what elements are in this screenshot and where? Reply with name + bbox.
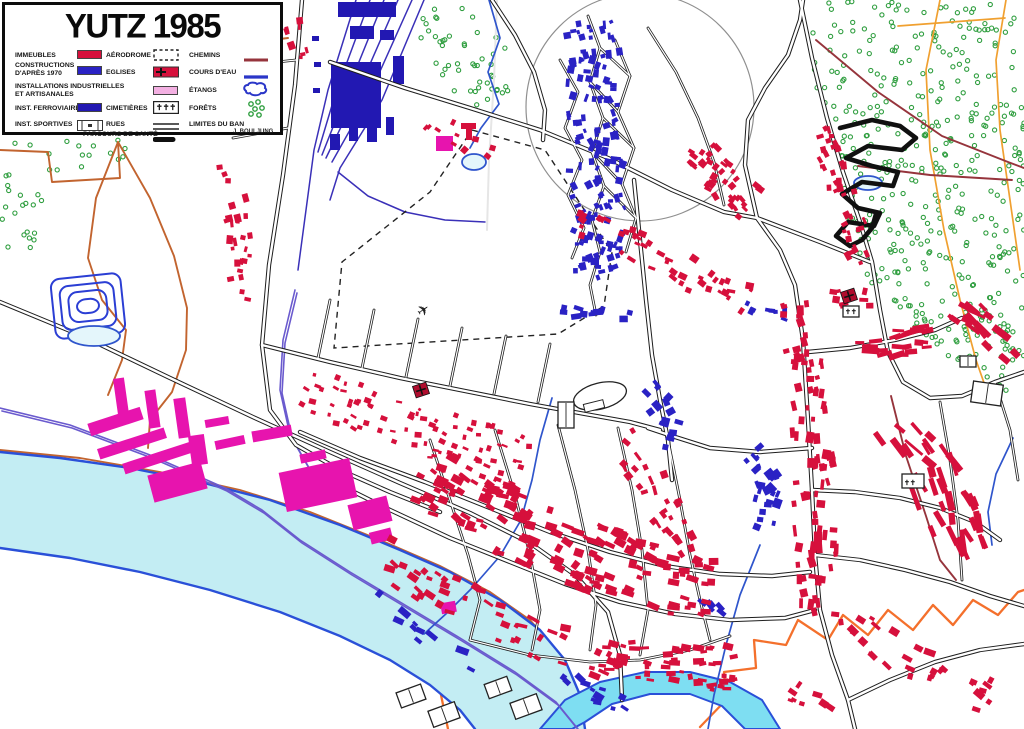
forest-dot [871, 34, 875, 38]
forest-dot [886, 4, 890, 8]
building [570, 227, 578, 234]
legend-label-chemins: CHEMINS [189, 52, 220, 60]
building [546, 506, 554, 514]
building [792, 525, 797, 537]
building [363, 420, 370, 427]
building [453, 412, 459, 418]
forest-dot [485, 97, 489, 101]
building [573, 268, 578, 273]
forest-dot [953, 229, 957, 233]
forest-dot [950, 285, 954, 289]
building [668, 578, 680, 586]
building [606, 241, 614, 248]
forest-dot [961, 91, 965, 95]
legend-swatch-industrielles [153, 86, 178, 95]
building [745, 282, 754, 290]
building [933, 510, 946, 527]
forest-dot [894, 8, 898, 12]
forest-dot [970, 134, 974, 138]
building [609, 19, 614, 24]
forest-dot [13, 211, 17, 215]
forest-dot [896, 3, 900, 7]
building [981, 340, 993, 352]
forest-dot [39, 198, 43, 202]
forest-dot [1005, 343, 1009, 347]
forest-dot [854, 110, 858, 114]
forest-dot [980, 214, 984, 218]
forest-dot [974, 112, 978, 116]
forest-dot [989, 189, 993, 193]
forest-dot [87, 153, 91, 157]
forest-dot [28, 143, 32, 147]
building [231, 246, 235, 250]
building [604, 668, 615, 671]
forest-dot [1013, 153, 1017, 157]
forest-dot [1007, 251, 1011, 255]
forest-dot [875, 104, 879, 108]
stream-line [988, 438, 1013, 545]
forest-dot [823, 86, 827, 90]
building [699, 149, 706, 156]
forest-dot [882, 197, 886, 201]
building [517, 464, 524, 471]
building [661, 665, 671, 670]
forest-dot [901, 191, 905, 195]
forest-dot [884, 100, 888, 104]
building [240, 235, 246, 241]
building [671, 646, 679, 654]
forest-dot [79, 165, 83, 169]
forest-dot [956, 79, 960, 83]
building [391, 438, 398, 444]
forest-dot [994, 28, 998, 32]
forest-dot [829, 7, 833, 11]
forest-dot [910, 241, 914, 245]
forest-dot [1011, 50, 1015, 54]
forest-dot [909, 105, 913, 109]
building [832, 296, 840, 304]
building [724, 277, 731, 284]
forest-dot [965, 67, 969, 71]
forest-dot [851, 29, 855, 33]
building [247, 232, 253, 239]
forest-dot [934, 161, 938, 165]
building [576, 30, 580, 35]
building [803, 332, 808, 338]
building [813, 433, 820, 444]
building [244, 297, 251, 302]
building [514, 438, 520, 443]
forest-dot [867, 52, 871, 56]
rail-installation [367, 120, 377, 142]
building [587, 25, 591, 29]
building [520, 434, 526, 440]
building [350, 414, 357, 419]
forest-dot [1014, 279, 1018, 283]
legend-swatch-chemins-icon [243, 51, 269, 69]
forest-dot [832, 23, 836, 27]
building [358, 381, 365, 388]
building [753, 494, 759, 502]
building [620, 704, 629, 711]
building [806, 367, 811, 373]
building [836, 178, 842, 186]
legend-swatch-constructions [77, 66, 102, 75]
building [797, 305, 804, 315]
building [674, 419, 683, 426]
chemin-path [816, 40, 1024, 168]
building [225, 178, 231, 183]
forest-dot [973, 169, 977, 173]
building [894, 354, 909, 357]
building [592, 96, 597, 102]
building [820, 164, 826, 169]
building [799, 588, 808, 598]
forest-dot [1007, 164, 1011, 168]
building [697, 278, 707, 287]
building [578, 57, 581, 64]
forest-dot [920, 311, 924, 315]
building [634, 452, 642, 462]
forest-dot [432, 7, 436, 11]
building [794, 542, 803, 552]
forest-dot [1001, 365, 1005, 369]
building [642, 570, 651, 576]
building [656, 250, 665, 258]
forest-dot [967, 26, 971, 30]
forest-dot [992, 233, 996, 237]
building [642, 464, 649, 471]
building [790, 400, 797, 411]
forest-dot [1009, 22, 1013, 26]
forest-dot [441, 73, 445, 77]
building [526, 444, 532, 449]
forest-dot [898, 305, 902, 309]
forest-dot [858, 251, 862, 255]
building [743, 457, 750, 464]
forest-dot [955, 11, 959, 15]
forest-dot [890, 0, 894, 4]
building [314, 384, 321, 389]
building [818, 388, 824, 398]
forest-dot [946, 354, 950, 358]
building [775, 490, 781, 498]
building [712, 276, 719, 283]
forest-dot [868, 106, 872, 110]
forest-dot [868, 38, 872, 42]
building [792, 362, 799, 370]
forest-dot [972, 143, 976, 147]
building [888, 626, 900, 637]
legend-swatch-parcours-icon [153, 130, 179, 148]
forest-dot [944, 5, 948, 9]
forest-dot [998, 167, 1002, 171]
building [804, 300, 809, 307]
forest-dot [960, 51, 964, 55]
industrial-building [279, 458, 358, 512]
street [406, 319, 418, 377]
legend-swatch-aerodrome-icon [153, 48, 179, 66]
building [300, 52, 306, 57]
forest-dot [1018, 158, 1022, 162]
building [780, 311, 787, 318]
building [629, 427, 636, 434]
forest-dot [947, 188, 951, 192]
building [803, 491, 811, 500]
legend-panel: YUTZ 1985 IMMEUBLES CONSTRUCTIONS D'APRÈ… [2, 2, 283, 135]
building [812, 691, 823, 699]
forest-dot [500, 91, 504, 95]
forest-dot [935, 166, 939, 170]
forest-dot [31, 203, 35, 207]
forest-dot [919, 242, 923, 246]
building [722, 674, 727, 678]
building [598, 663, 606, 667]
building [693, 658, 704, 665]
forest-dot [923, 267, 927, 271]
building [486, 445, 492, 452]
building [838, 619, 844, 626]
forest-dot [446, 63, 450, 67]
forest-dot [1002, 138, 1006, 142]
forest-dot [948, 53, 952, 57]
building [619, 193, 623, 198]
cemetery-crosses: ✝✝ [904, 479, 916, 487]
forest-dot [7, 188, 11, 192]
building [757, 517, 764, 523]
building [669, 429, 678, 436]
forest-dot [997, 291, 1001, 295]
building [729, 675, 736, 683]
building [560, 624, 572, 633]
forest-dot [890, 193, 894, 197]
building [606, 651, 613, 658]
building [619, 316, 627, 323]
forest-dot [896, 164, 900, 168]
industrial-building [188, 434, 208, 466]
forest-dot [433, 35, 437, 39]
forest-dot [873, 5, 877, 9]
building [759, 509, 766, 515]
forest-dot [435, 16, 439, 20]
building [648, 265, 656, 271]
building [570, 571, 584, 578]
forest-dot [936, 124, 940, 128]
building [431, 454, 437, 457]
forest-dot [915, 46, 919, 50]
building [772, 498, 783, 510]
building [626, 310, 633, 316]
forest-dot [925, 282, 929, 286]
building [404, 427, 408, 432]
forest-dot [916, 94, 920, 98]
forest-dot [471, 15, 475, 19]
building [794, 383, 803, 393]
building [705, 646, 713, 651]
building [242, 193, 250, 203]
building [662, 444, 669, 451]
building [796, 317, 806, 327]
building [628, 640, 636, 645]
building [308, 398, 316, 405]
building [569, 57, 577, 65]
forest-dot [6, 183, 10, 187]
building [608, 199, 613, 203]
building [752, 522, 761, 531]
building [515, 460, 522, 463]
industrial-building [87, 407, 143, 436]
forest-dot [939, 314, 943, 318]
building [810, 552, 814, 561]
building [593, 69, 599, 77]
forest-dot [982, 134, 986, 138]
building [436, 463, 448, 473]
forest-dot [935, 342, 939, 346]
building [686, 574, 699, 583]
building [227, 276, 235, 282]
forest-dot [1004, 103, 1008, 107]
forest-dot [976, 80, 980, 84]
forest-dot [899, 249, 903, 253]
building [862, 347, 880, 355]
building [816, 500, 825, 508]
forest-dot [1016, 217, 1020, 221]
forest-dot [1001, 199, 1005, 203]
forest-dot [859, 172, 863, 176]
forest-dot [985, 375, 989, 379]
building [808, 574, 816, 579]
building [825, 138, 832, 144]
building [357, 425, 363, 431]
legend-swatch-immeubles [77, 50, 102, 59]
forest-dot [811, 31, 815, 35]
forest-dot [897, 282, 901, 286]
rail-installation [313, 88, 320, 93]
forest-dot [988, 2, 992, 6]
forest-dot [421, 17, 425, 21]
forest-dot [951, 65, 955, 69]
building [855, 341, 864, 344]
legend-label-cimetieres: CIMETIÈRES [106, 105, 148, 113]
building [594, 212, 598, 217]
building [666, 671, 675, 676]
forest-dot [843, 54, 847, 58]
building [928, 525, 937, 538]
building [828, 564, 833, 572]
forest-dot [974, 74, 978, 78]
forest-dot [503, 46, 507, 50]
forest-dot [862, 27, 866, 31]
building [652, 485, 658, 495]
building [799, 598, 803, 608]
building [599, 240, 604, 244]
building [640, 489, 648, 495]
building [333, 385, 340, 391]
legend-label-aerodrome: AÉRODROME [106, 52, 151, 60]
building [827, 184, 832, 190]
forest-dot [955, 115, 959, 119]
forest-dot [443, 67, 447, 71]
industrial-building [436, 136, 453, 151]
building [638, 646, 649, 649]
forest-dot [879, 110, 883, 114]
building [573, 120, 578, 126]
forest-dot [957, 62, 961, 66]
building [418, 408, 422, 412]
forest-dot [36, 193, 40, 197]
building [847, 230, 851, 235]
building [892, 329, 904, 333]
building [595, 127, 601, 133]
forest-dot [857, 49, 861, 53]
building [453, 425, 458, 429]
rail-installation [380, 30, 394, 40]
road-casing [800, 0, 1024, 398]
building [722, 687, 731, 690]
building [344, 381, 348, 386]
building [476, 433, 481, 437]
building [771, 520, 776, 526]
building [829, 134, 834, 138]
building [727, 182, 736, 191]
building [905, 349, 918, 355]
building [712, 163, 720, 172]
forest-dot [966, 275, 970, 279]
building [798, 416, 804, 424]
forest-dot [945, 118, 949, 122]
forest-dot [873, 230, 877, 234]
building [825, 478, 831, 486]
forest-dot [829, 34, 833, 38]
forest-dot [834, 117, 838, 121]
forest-dot [904, 227, 908, 231]
building [414, 432, 421, 438]
building [733, 176, 740, 183]
building [711, 191, 720, 201]
building [584, 566, 598, 577]
building [660, 470, 669, 480]
building [589, 35, 593, 39]
building [812, 519, 819, 525]
forest-dot [975, 154, 979, 158]
building [580, 311, 588, 318]
building [646, 407, 656, 417]
forest-dot [477, 86, 481, 90]
forest-dot [842, 134, 846, 138]
forest-dot [880, 267, 884, 271]
building [589, 158, 594, 165]
forest-dot [994, 223, 998, 227]
forest-dot [918, 113, 922, 117]
building [680, 570, 686, 577]
forest-dot [827, 1, 831, 5]
building [668, 611, 674, 616]
building [547, 628, 558, 635]
yutz-map-page: ✈✝✝✝✝ YUTZ 1985 IMMEUBLES CONSTRUCTIONS … [0, 0, 1024, 729]
forest-dot [25, 230, 29, 234]
forest-dot [960, 276, 964, 280]
forest-dot [954, 184, 958, 188]
building [855, 615, 866, 625]
building [371, 391, 377, 398]
forest-dot [982, 366, 986, 370]
building [415, 411, 419, 416]
forest-dot [959, 170, 963, 174]
forest-dot [960, 260, 964, 264]
forest-dot [891, 24, 895, 28]
building [665, 406, 676, 416]
building [678, 280, 684, 287]
